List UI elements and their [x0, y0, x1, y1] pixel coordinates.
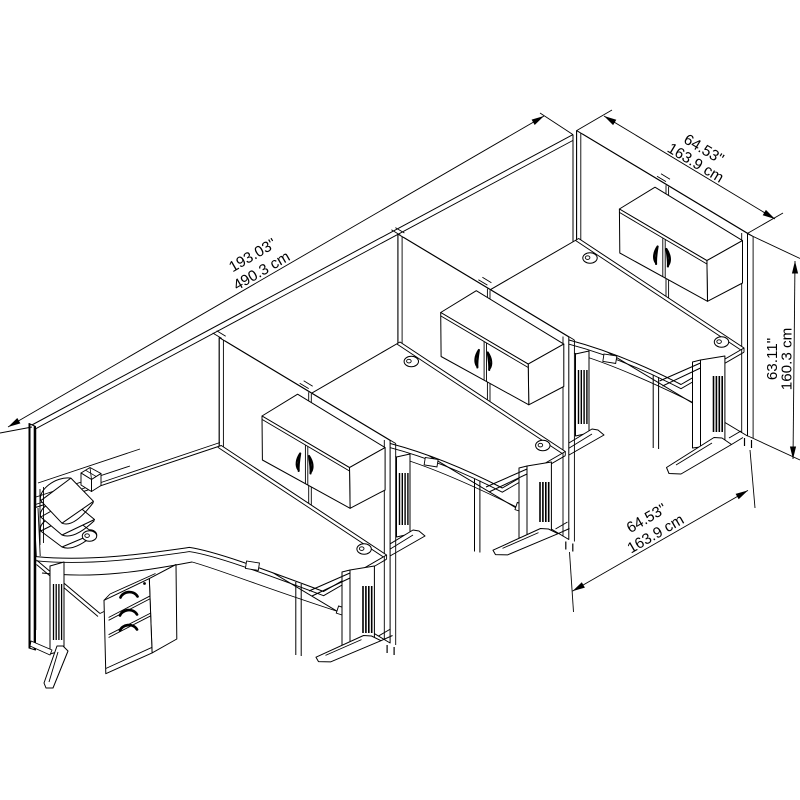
svg-text:160.3 cm: 160.3 cm [779, 328, 796, 390]
